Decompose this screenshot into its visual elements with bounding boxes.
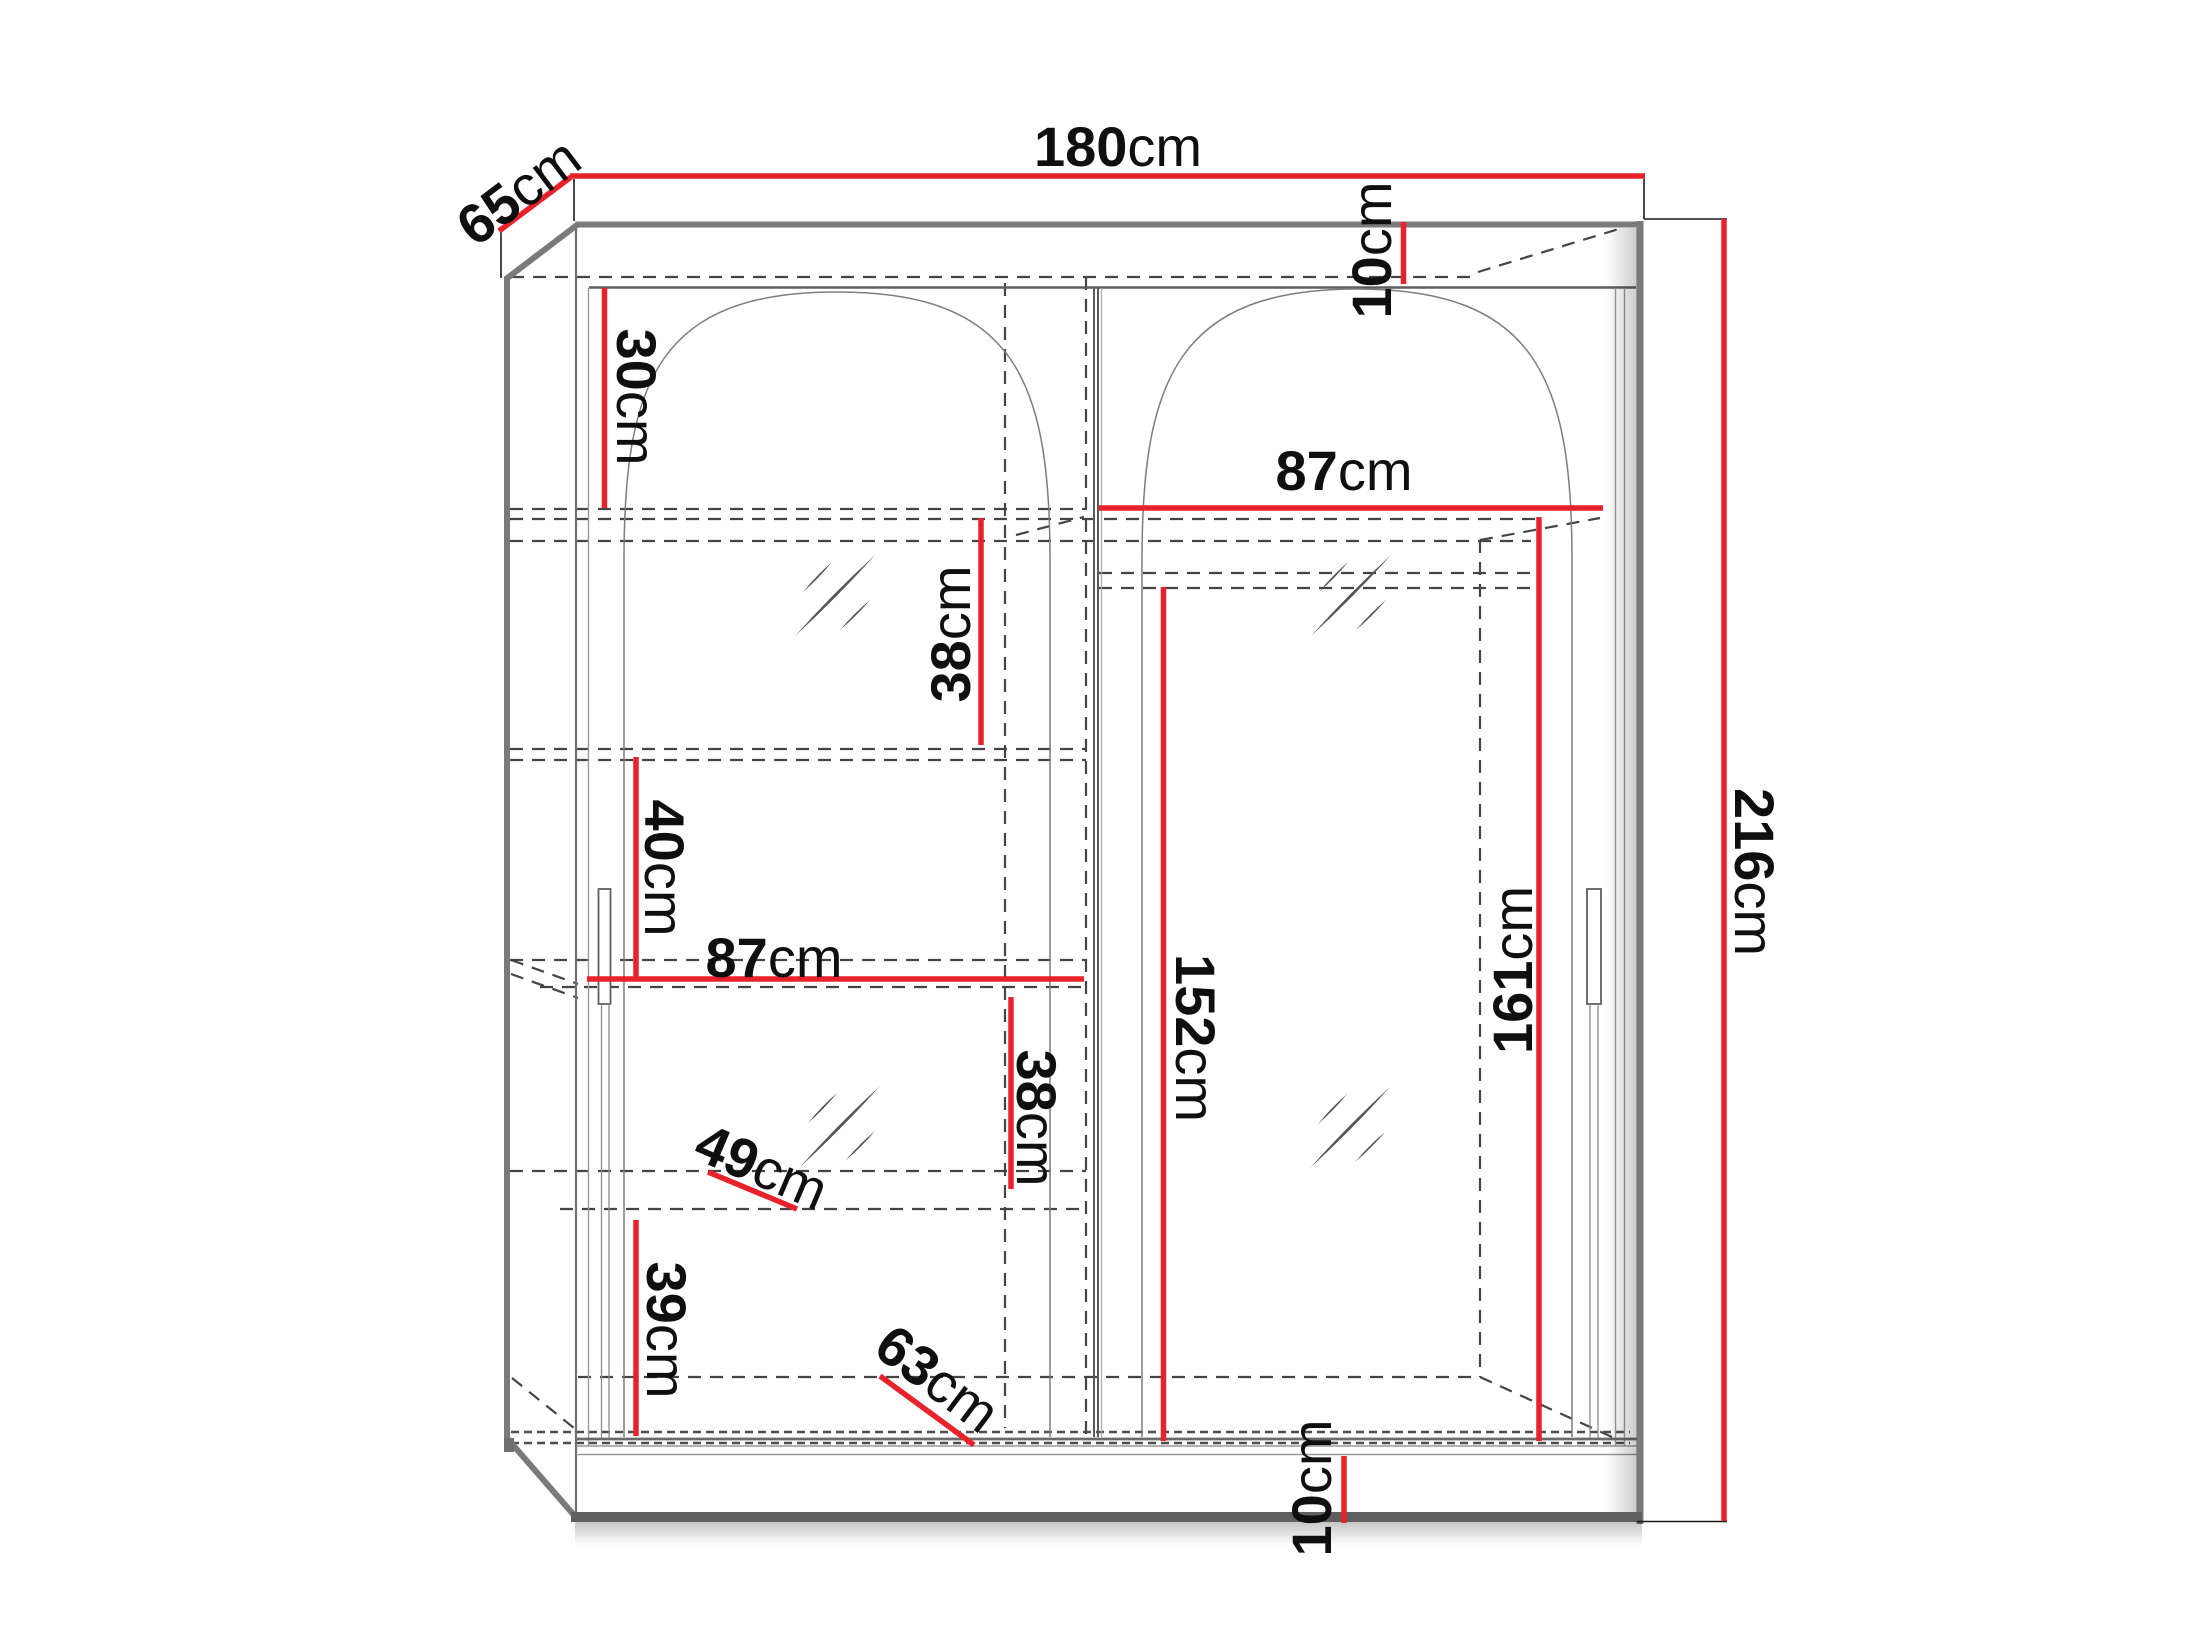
svg-text:38cm: 38cm [919,566,982,703]
svg-text:65cm: 65cm [445,125,592,258]
svg-text:180cm: 180cm [1034,115,1202,178]
svg-text:10cm: 10cm [1340,182,1403,319]
svg-text:38cm: 38cm [1005,1050,1068,1187]
svg-text:87cm: 87cm [706,926,843,989]
svg-text:30cm: 30cm [605,329,668,466]
svg-text:40cm: 40cm [633,800,696,937]
svg-text:39cm: 39cm [635,1262,698,1399]
svg-text:161cm: 161cm [1481,886,1544,1054]
svg-text:49cm: 49cm [686,1111,837,1223]
svg-text:216cm: 216cm [1723,788,1786,956]
svg-text:87cm: 87cm [1276,439,1413,502]
svg-text:10cm: 10cm [1280,1420,1343,1557]
svg-text:152cm: 152cm [1164,954,1227,1122]
svg-text:63cm: 63cm [864,1312,1011,1445]
